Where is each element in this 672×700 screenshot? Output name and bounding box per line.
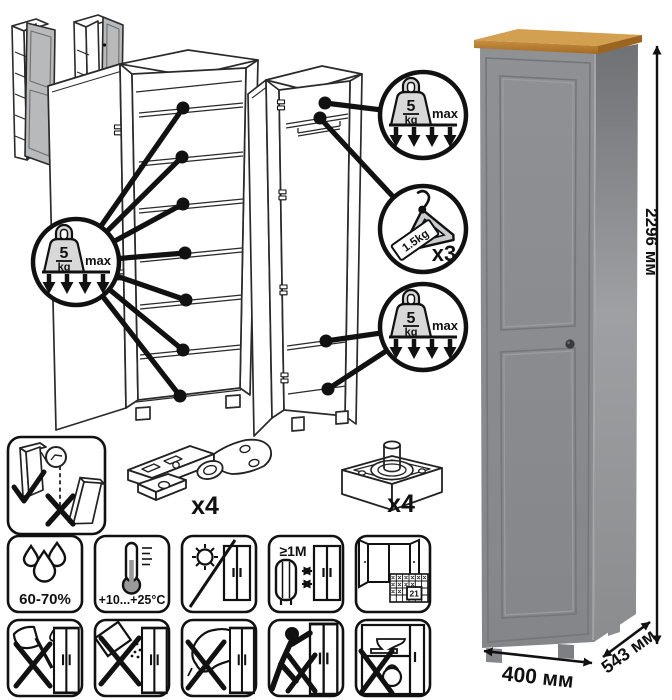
no-heavy-load-icon xyxy=(356,620,430,696)
hinge-qty: x4 xyxy=(191,492,219,520)
width-dim-label: 400 мм xyxy=(501,662,575,692)
no-sharp-tools-icon xyxy=(8,620,82,696)
humidity-range: 60-70% xyxy=(19,591,71,608)
foot-qty: x4 xyxy=(387,490,415,518)
no-dragging-icon xyxy=(269,620,343,696)
ventilation-icon: 21 xyxy=(356,536,430,612)
hinge-hardware xyxy=(128,440,271,500)
temperature-range: +10...+25°C xyxy=(99,593,166,607)
calendar-day: 21 xyxy=(409,589,419,599)
wardrobe-product xyxy=(474,29,642,663)
no-sunlight-icon xyxy=(182,536,256,612)
wardrobe-front-panel xyxy=(480,46,596,648)
infographic-sheet: 5 kg max xyxy=(0,0,672,700)
min-distance-label: ≥1M xyxy=(279,543,306,559)
temperature-icon: +10...+25°C xyxy=(95,536,169,612)
humidity-icon: 60-70% xyxy=(8,536,82,612)
wardrobe-side-panel xyxy=(594,44,638,642)
height-dim-label: 2296 мм xyxy=(642,208,661,276)
hanger-load-count: x3 xyxy=(432,241,456,266)
heat-distance-icon: ≥1M xyxy=(269,536,343,612)
hanger-load-badge: 1.5kg x3 xyxy=(380,186,466,272)
anti-tip-icon xyxy=(8,437,105,534)
wardrobe-foot xyxy=(558,644,574,659)
door-knob xyxy=(565,339,574,348)
no-abrasives-icon xyxy=(95,620,169,696)
no-wet-cloth-icon xyxy=(182,620,256,696)
